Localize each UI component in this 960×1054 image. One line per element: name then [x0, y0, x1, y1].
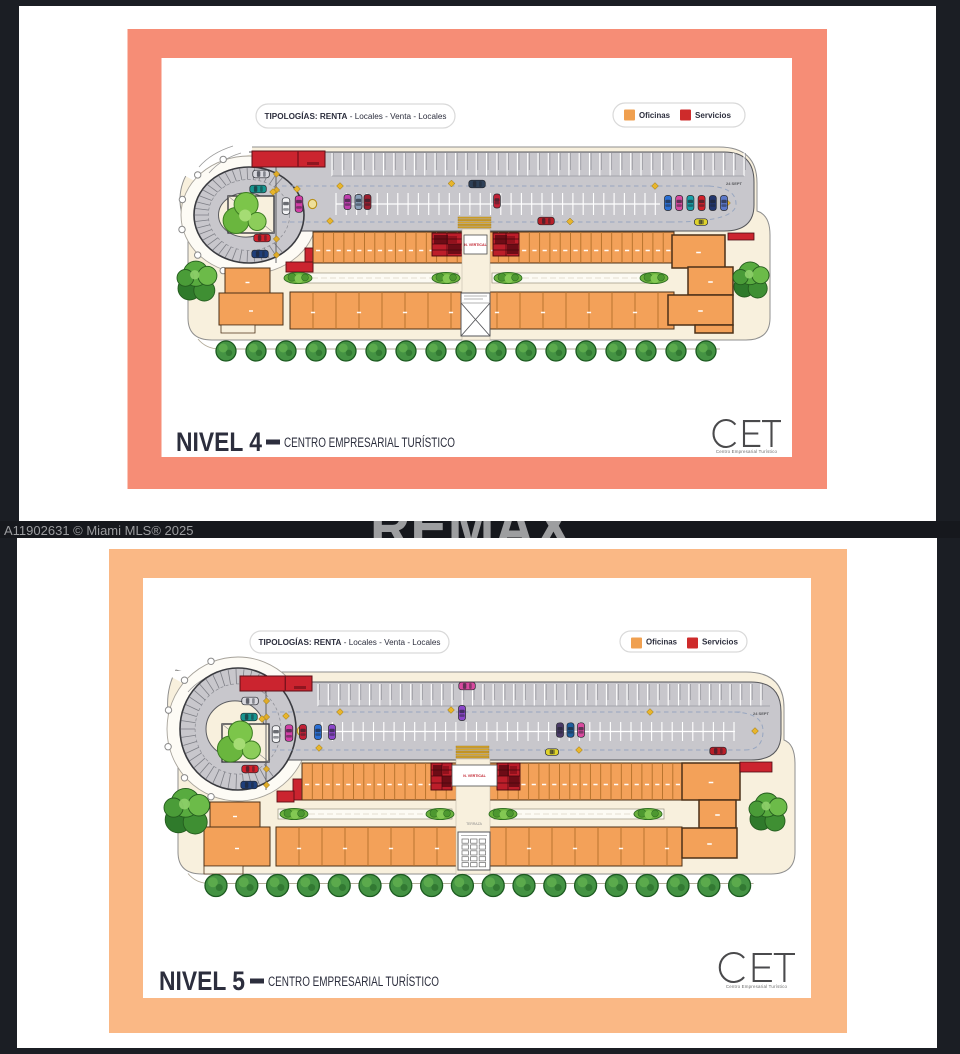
svg-text:N. VERTICAL: N. VERTICAL	[464, 243, 487, 247]
svg-text:TERRAZA: TERRAZA	[466, 822, 483, 826]
svg-text:N. VERTICAL: N. VERTICAL	[463, 774, 486, 778]
svg-text:24 SEPT: 24 SEPT	[726, 181, 743, 186]
svg-text:CENTRO EMPRESARIAL TURÍSTICO: CENTRO EMPRESARIAL TURÍSTICO	[268, 974, 439, 989]
svg-text:NIVEL 4: NIVEL 4	[176, 427, 262, 457]
svg-text:Centro Empresarial Turístico: Centro Empresarial Turístico	[726, 984, 788, 989]
svg-text:CENTRO EMPRESARIAL TURÍSTICO: CENTRO EMPRESARIAL TURÍSTICO	[284, 435, 455, 450]
svg-text:NIVEL 5: NIVEL 5	[159, 966, 245, 996]
svg-text:Centro Empresarial Turístico: Centro Empresarial Turístico	[716, 449, 778, 454]
svg-text:Oficinas: Oficinas	[646, 638, 678, 647]
svg-text:A11902631 © Miami MLS® 2025: A11902631 © Miami MLS® 2025	[4, 523, 193, 538]
svg-text:Servicios: Servicios	[702, 638, 739, 647]
svg-text:24 SEPT: 24 SEPT	[753, 711, 770, 716]
svg-text:Servicios: Servicios	[695, 111, 732, 120]
svg-text:TIPOLOGÍAS: RENTA - Locales -: TIPOLOGÍAS: RENTA - Locales - Venta - Lo…	[265, 111, 447, 121]
svg-text:TIPOLOGÍAS: RENTA - Locales -: TIPOLOGÍAS: RENTA - Locales - Venta - Lo…	[259, 637, 441, 647]
svg-text:Oficinas: Oficinas	[639, 111, 671, 120]
